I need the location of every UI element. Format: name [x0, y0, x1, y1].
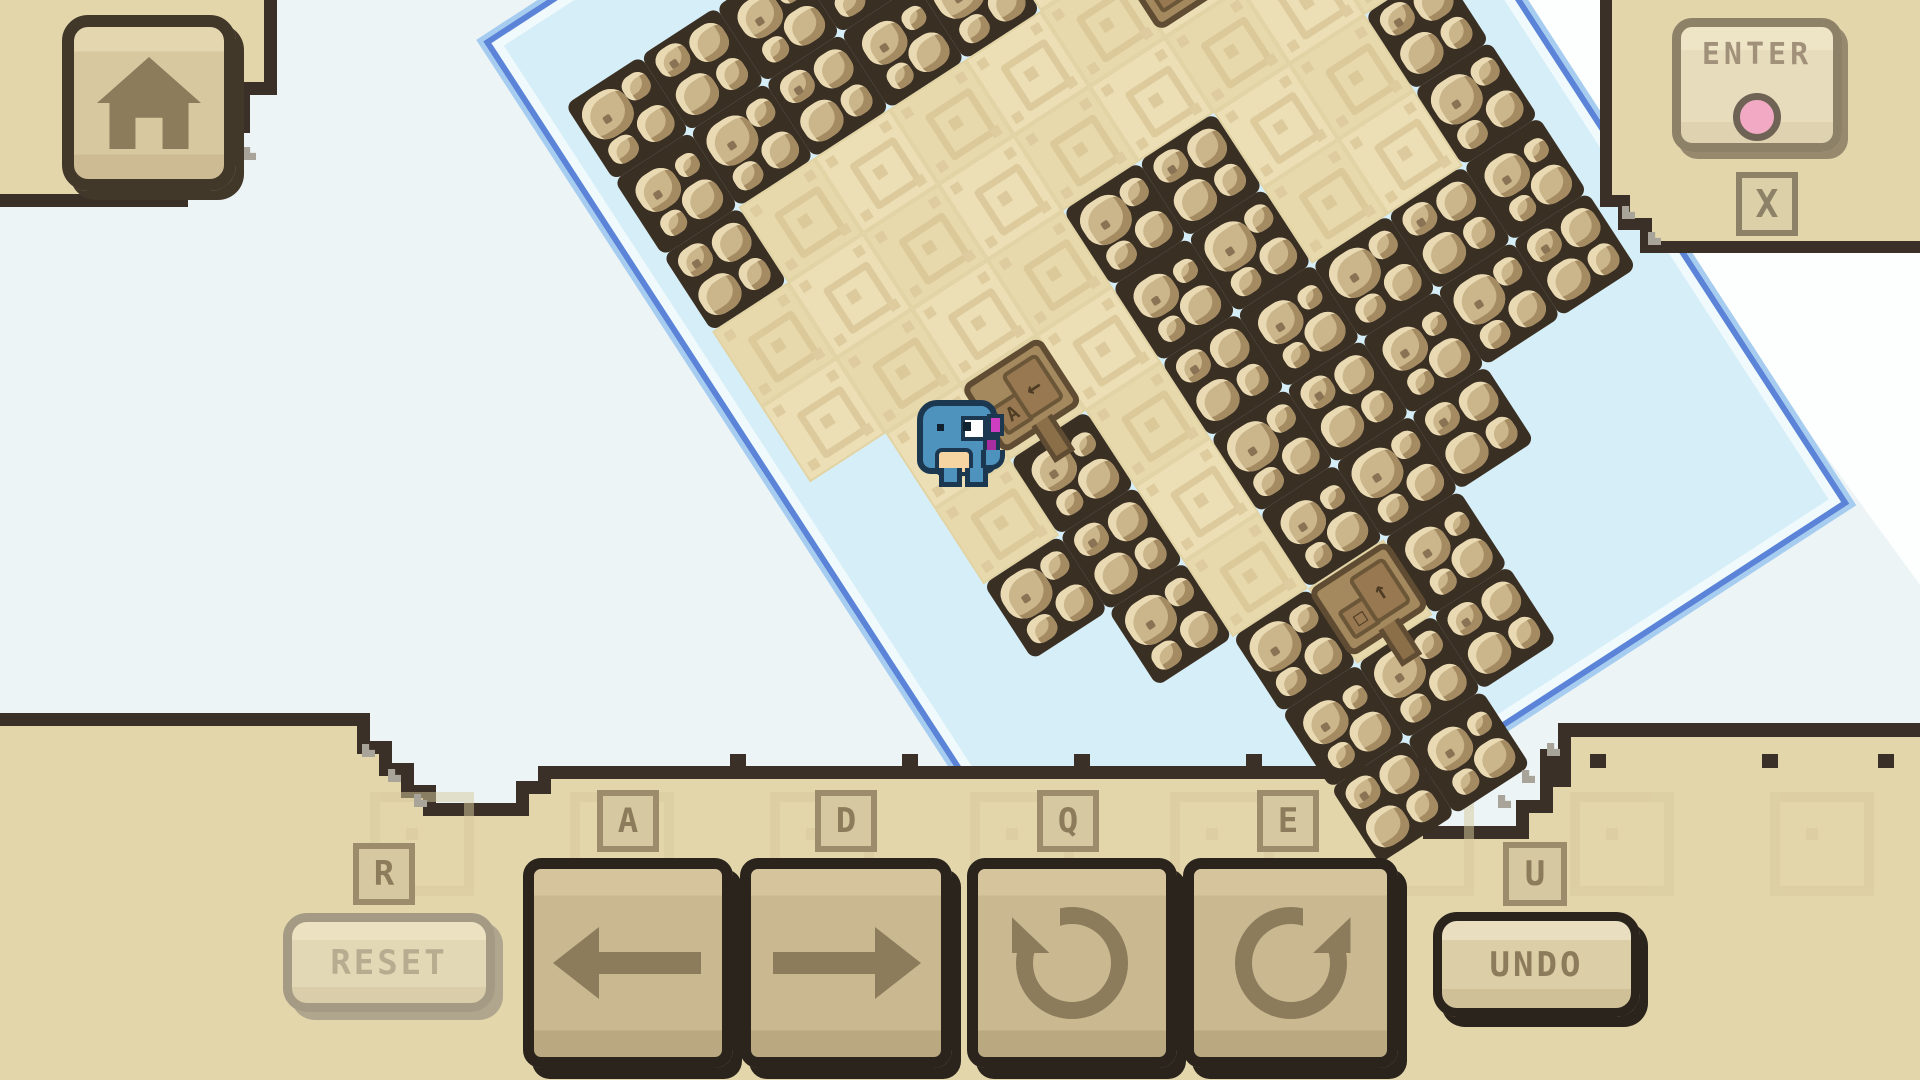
- sign-glyph: ↻: [1145, 0, 1191, 14]
- panel-notch: [1590, 754, 1606, 768]
- move-left-button[interactable]: [523, 858, 733, 1068]
- dino-nostril: [937, 424, 944, 431]
- panel-notch: [902, 754, 918, 768]
- enter-button[interactable]: ENTER: [1672, 18, 1842, 152]
- game-screen: ↻ E A ← □ ↑ ENTER X R RESET A: [0, 0, 1920, 1080]
- player-dino: [915, 398, 1007, 486]
- key-hint-q: Q: [1037, 790, 1099, 852]
- panel-ornament: [1770, 792, 1874, 896]
- enter-button-label: ENTER: [1681, 37, 1833, 72]
- rotate-ccw-icon: [1016, 907, 1128, 1019]
- move-right-button[interactable]: [740, 858, 952, 1068]
- key-hint-x: X: [1736, 172, 1798, 236]
- rotate-ccw-button[interactable]: [967, 858, 1177, 1068]
- rotate-cw-icon: [1235, 907, 1347, 1019]
- panel-ornament: [1570, 792, 1674, 896]
- undo-button[interactable]: UNDO: [1433, 912, 1640, 1017]
- home-icon: [97, 57, 201, 149]
- panel-notch: [1074, 754, 1090, 768]
- dino-leg: [939, 468, 962, 487]
- dino-tail: [981, 450, 1005, 470]
- panel-notch: [1878, 754, 1894, 768]
- panel-notch: [1246, 754, 1262, 768]
- enter-dot-icon: [1733, 93, 1781, 141]
- dino-leg: [965, 468, 988, 487]
- reset-button[interactable]: RESET: [283, 913, 495, 1012]
- panel-notch: [730, 754, 746, 768]
- key-hint-a: A: [597, 790, 659, 852]
- rotate-cw-button[interactable]: [1183, 858, 1398, 1068]
- key-hint-r: R: [353, 843, 415, 905]
- dino-frill: [987, 414, 1004, 436]
- key-hint-e: E: [1257, 790, 1319, 852]
- arrow-left-icon: [553, 927, 703, 999]
- arrow-right-icon: [771, 927, 921, 999]
- key-hint-u: U: [1503, 842, 1567, 906]
- panel-notch: [1762, 754, 1778, 768]
- key-hint-d: D: [815, 790, 877, 852]
- dino-pupil: [963, 422, 971, 431]
- home-button[interactable]: [62, 15, 236, 191]
